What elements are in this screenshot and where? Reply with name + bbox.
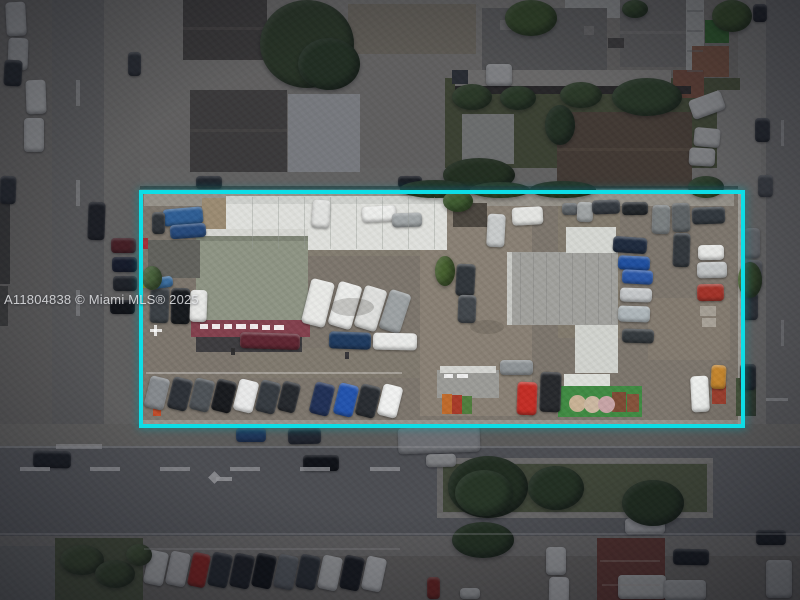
- scene-mark: [600, 560, 660, 562]
- scene-mark: [236, 324, 246, 329]
- scene-mark: [611, 253, 612, 324]
- scene-mark: [252, 197, 253, 249]
- scene-mark: [76, 80, 80, 106]
- scene-mark: [520, 253, 521, 324]
- scene-mark: [144, 548, 400, 550]
- scene-mark: [212, 324, 220, 329]
- scene-mark: [250, 324, 258, 329]
- scene-mark: [687, 30, 703, 32]
- aerial-property-photo: A11804838 © Miami MLS® 2025: [0, 0, 800, 600]
- scene-mark: [546, 253, 547, 324]
- scene-mark: [444, 374, 453, 378]
- scene-mark: [382, 197, 383, 249]
- scene-mark: [20, 467, 50, 471]
- scene-mark: [602, 584, 660, 586]
- scene-mark: [278, 197, 279, 249]
- scene-mark: [90, 467, 120, 471]
- scene-mark: [0, 533, 800, 535]
- scene-mark: [598, 253, 599, 324]
- scene-mark: [687, 10, 703, 12]
- scene-mark: [457, 374, 468, 378]
- scene-mark: [330, 298, 374, 316]
- scene-mark: [300, 467, 330, 471]
- scene-mark: [470, 320, 504, 334]
- scene-mark: [345, 352, 349, 359]
- scene-mark: [230, 467, 260, 471]
- scene-mark: [781, 120, 784, 146]
- scene-mark: [231, 348, 235, 355]
- mls-watermark: A11804838 © Miami MLS® 2025: [4, 292, 199, 307]
- scene-mark: [766, 398, 788, 401]
- scene-mark: [200, 324, 208, 329]
- scene-mark: [0, 446, 800, 448]
- scene-mark: [408, 197, 409, 249]
- scene-mark: [304, 197, 305, 249]
- scene-mark: [224, 324, 232, 329]
- scene-mark: [781, 320, 784, 346]
- scene-mark: [687, 70, 703, 72]
- scene-mark: [160, 467, 190, 471]
- scene-mark: [262, 325, 270, 330]
- scene-mark: [559, 253, 560, 324]
- scene-mark: [330, 197, 331, 249]
- scene-mark: [274, 325, 284, 330]
- scene-mark: [533, 253, 534, 324]
- scene-mark: [140, 186, 738, 189]
- scene-mark: [76, 180, 80, 206]
- scene-mark: [370, 467, 400, 471]
- scene-mark: [146, 372, 402, 374]
- scene-mark: [356, 197, 357, 249]
- scene-mark: [434, 197, 435, 249]
- scene-mark: [572, 253, 573, 324]
- scene-mark: [585, 253, 586, 324]
- scene-mark: [208, 471, 221, 484]
- scene-mark: [687, 50, 703, 52]
- scene-mark: [154, 325, 157, 336]
